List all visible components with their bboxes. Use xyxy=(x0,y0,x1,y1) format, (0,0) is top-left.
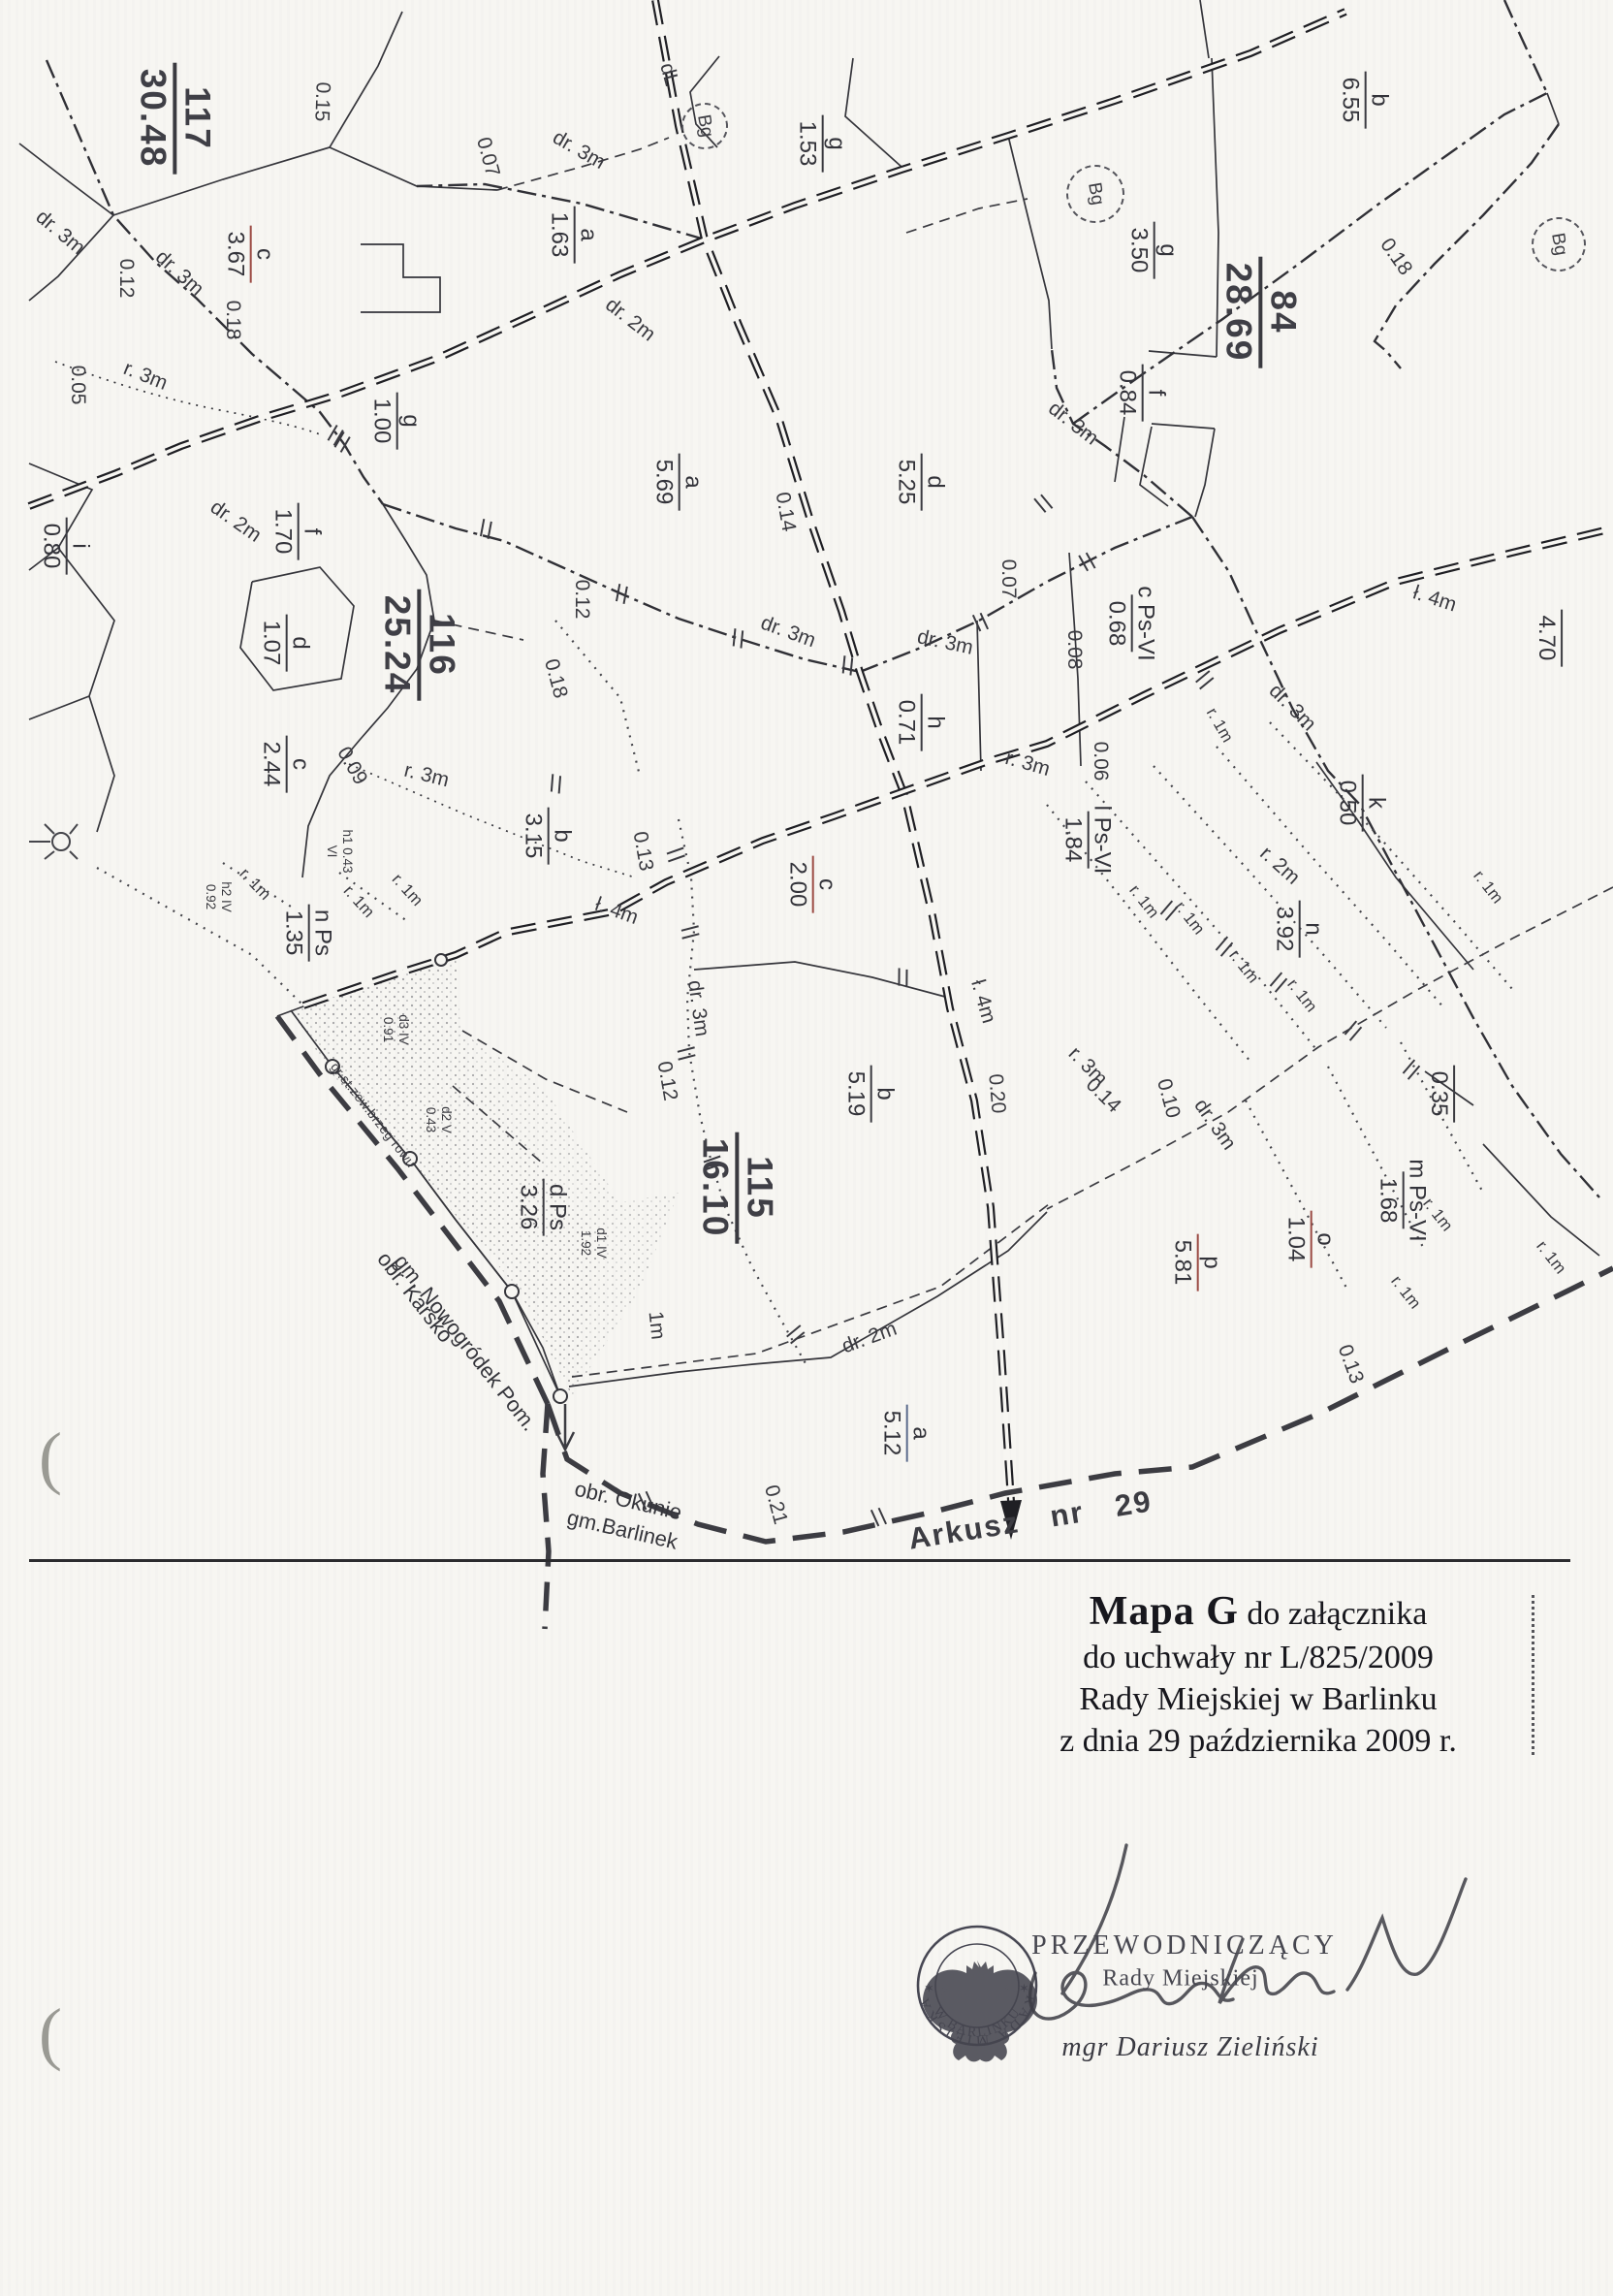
road-label: r. 1m xyxy=(1124,881,1162,922)
bg-landuse-symbol: Bg xyxy=(1061,160,1129,228)
parcel-label: d5.25 xyxy=(894,454,947,511)
soil-class-label: d1 IV 1.92 xyxy=(578,1228,609,1259)
scan-artifact-paren: ( xyxy=(39,1418,62,1498)
parcel-label: c2.44 xyxy=(259,736,312,793)
road-label: dL xyxy=(654,61,682,89)
measurement-label: 0.07 xyxy=(996,559,1020,599)
parcel-label: f1.70 xyxy=(270,503,324,560)
scanned-map-page: 11730.48c3.67a1.63g1.53g3.508428.69b6.55… xyxy=(0,0,1613,2296)
parcel-label: d1.07 xyxy=(259,615,312,672)
measurement-label: 0.07 xyxy=(471,135,504,179)
title-line-4: z dnia 29 października 2009 r. xyxy=(1039,1721,1477,1763)
parcel-label: d Ps3.26 xyxy=(516,1179,569,1236)
parcel-label: f0.84 xyxy=(1115,365,1168,422)
parcel-label: o1.04 xyxy=(1283,1211,1337,1268)
parcel-label: 11625.24 xyxy=(378,590,460,701)
road-label: r. 1m xyxy=(236,864,275,904)
parcel-label: c3.67 xyxy=(223,226,276,283)
parcel-label: b3.15 xyxy=(521,808,574,865)
road-label: r. 1m xyxy=(1532,1237,1569,1278)
title-block: Mapa G do załącznika do uchwały nr L/825… xyxy=(1039,1586,1477,1762)
measurement-label: 0.05 xyxy=(66,366,89,405)
road-label: ł. 4m xyxy=(592,893,642,930)
road-label: ł. 4m xyxy=(1410,582,1460,618)
title-line-1: Mapa G do załącznika xyxy=(1039,1586,1477,1638)
parcel-label: 11730.48 xyxy=(134,63,216,175)
sheet-number-label: Arkusz nr 29 xyxy=(906,1483,1155,1556)
scan-artifact-paren: ( xyxy=(39,1993,62,2074)
measurement-label: 0.13 xyxy=(1333,1342,1369,1387)
road-label: r. 1m xyxy=(1224,946,1262,987)
parcel-label: l Ps-VI1.84 xyxy=(1060,802,1114,878)
measurement-label: 0.18 xyxy=(1375,234,1416,279)
parcel-label: m Ps-VI1.68 xyxy=(1376,1155,1429,1245)
measurement-label: 0.13 xyxy=(628,830,658,873)
road-label: dr. 3m xyxy=(757,612,818,654)
signer-role-line1: PRZEWODNICZĄCY xyxy=(1031,1930,1338,1961)
measurement-label: 0.15 xyxy=(309,81,333,122)
measurement-label: 0.14 xyxy=(771,491,801,533)
road-label: r. 1m xyxy=(339,881,378,921)
parcel-label: a5.12 xyxy=(879,1405,933,1462)
road-label: gr.st.zew.brzeg rowu xyxy=(328,1060,419,1170)
parcel-label: n3.92 xyxy=(1272,901,1325,958)
parcel-label: h0.71 xyxy=(894,694,947,751)
parcel-label: 0.35 xyxy=(1427,1066,1456,1123)
road-label: dr. 3m xyxy=(1264,680,1320,736)
parcel-label: a1.63 xyxy=(547,207,600,264)
bg-label: Bg xyxy=(1546,232,1571,258)
road-label: dr. 3m xyxy=(31,206,89,260)
road-label: r. 1m xyxy=(388,870,427,909)
road-label: r. 3m xyxy=(120,357,171,396)
title-line-3: Rady Miejskiej w Barlinku xyxy=(1039,1679,1477,1721)
road-label: dr. 3m xyxy=(549,126,610,175)
road-label: r. 1m xyxy=(1170,898,1208,939)
soil-class-label: h1 0.43 VI xyxy=(324,829,355,873)
road-label: dr. 3m xyxy=(1044,398,1103,451)
parcel-label: p5.81 xyxy=(1170,1234,1223,1291)
parcel-label: c2.00 xyxy=(785,856,838,913)
title-block-dotted-edge xyxy=(1532,1595,1534,1755)
measurement-label: 0.12 xyxy=(114,259,138,299)
road-label: r. 2m xyxy=(1255,842,1305,889)
road-label: r. 3m xyxy=(1002,747,1052,781)
parcel-label: n Ps1.35 xyxy=(281,905,334,962)
parcel-label: g1.53 xyxy=(795,115,848,173)
parcel-label: b6.55 xyxy=(1338,72,1391,129)
road-label: dr. 3m xyxy=(915,625,975,660)
parcel-label: i0.80 xyxy=(39,518,92,575)
parcel-label: 4.70 xyxy=(1534,610,1564,667)
parcel-label: 11516.10 xyxy=(696,1132,778,1244)
parcel-label: g1.00 xyxy=(369,393,423,450)
parcel-label: g3.50 xyxy=(1126,222,1180,279)
measurement-label: 0.20 xyxy=(983,1073,1009,1115)
road-label: r. 1m xyxy=(1202,705,1237,747)
road-label: dr. 2m xyxy=(838,1318,900,1359)
parcel-label: a5.69 xyxy=(651,454,705,511)
road-label: dr. 3m xyxy=(682,978,713,1037)
road-label: dr. 2m xyxy=(206,495,266,547)
signer-name: mgr Dariusz Zieliński xyxy=(1061,2032,1318,2063)
parcel-label: b5.19 xyxy=(843,1066,897,1123)
signer-role-line2: Rady Miejskiej xyxy=(1102,1966,1258,1993)
bg-landuse-symbol: Bg xyxy=(678,99,732,153)
map-frame-rule xyxy=(29,1559,1570,1562)
bg-label: Bg xyxy=(692,113,717,140)
measurement-label: 0.12 xyxy=(570,580,593,620)
road-label: 1m xyxy=(644,1310,670,1341)
soil-class-label: h2 IV 0.92 xyxy=(203,881,234,912)
soil-class-label: d2 V 0.43 xyxy=(423,1106,454,1133)
measurement-label: 0.21 xyxy=(759,1483,792,1527)
road-label: r. 1m xyxy=(1386,1272,1424,1313)
title-line-2: do uchwały nr L/825/2009 xyxy=(1039,1638,1477,1679)
road-label: ł. 4m xyxy=(965,977,1000,1026)
bg-landuse-symbol: Bg xyxy=(1528,213,1591,276)
parcel-label: k0.50 xyxy=(1335,775,1388,832)
measurement-label: 0.18 xyxy=(221,301,244,340)
soil-class-label: d3 IV 0.91 xyxy=(380,1014,411,1045)
parcel-label: c Ps-VI0.68 xyxy=(1104,582,1157,664)
measurement-label: 0.09 xyxy=(332,743,371,788)
road-label: r. 3m xyxy=(401,759,451,793)
measurement-label: 0.08 xyxy=(1062,630,1086,670)
bg-label: Bg xyxy=(1083,181,1108,207)
measurement-label: 0.12 xyxy=(652,1060,682,1102)
map-title: Mapa G xyxy=(1090,1589,1239,1634)
measurement-label: 0.18 xyxy=(539,656,572,701)
map-label-layer: 11730.48c3.67a1.63g1.53g3.508428.69b6.55… xyxy=(0,0,1613,2296)
road-label: r. 1m xyxy=(1469,867,1506,908)
measurement-label: 0.10 xyxy=(1152,1076,1185,1121)
road-label: dr. 3m xyxy=(150,246,207,302)
road-label: r. 1m xyxy=(1282,975,1320,1016)
parcel-label: 8428.69 xyxy=(1219,257,1302,368)
measurement-label: 0.06 xyxy=(1089,742,1112,781)
road-label: dr. 3m xyxy=(1188,1095,1240,1155)
road-label: dr. 2m xyxy=(601,294,660,347)
